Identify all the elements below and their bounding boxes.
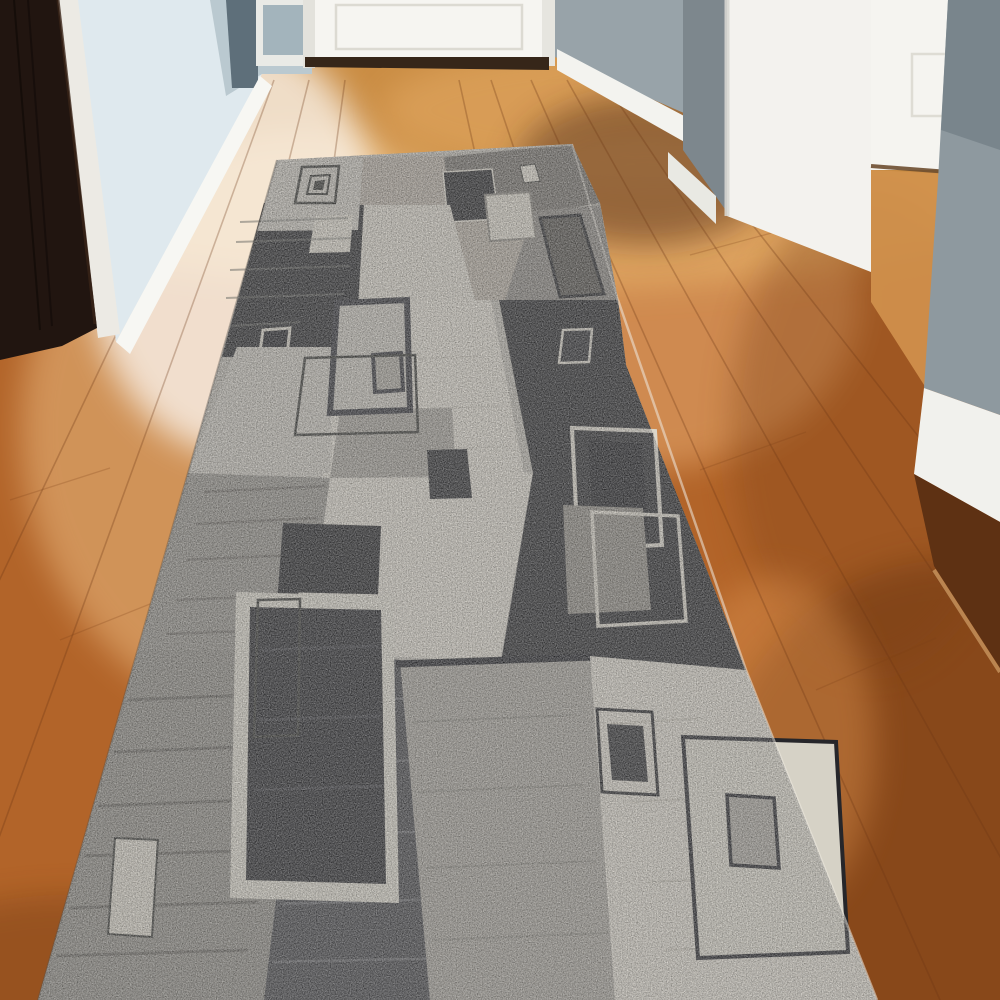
end-door-right-trim xyxy=(542,0,555,66)
sidelight-glass xyxy=(263,5,303,55)
right-background-door xyxy=(871,0,949,170)
right-wall-top-shade xyxy=(941,0,1000,150)
end-door xyxy=(314,0,544,62)
scene-svg xyxy=(0,0,1000,1000)
hallway-photo xyxy=(0,0,1000,1000)
